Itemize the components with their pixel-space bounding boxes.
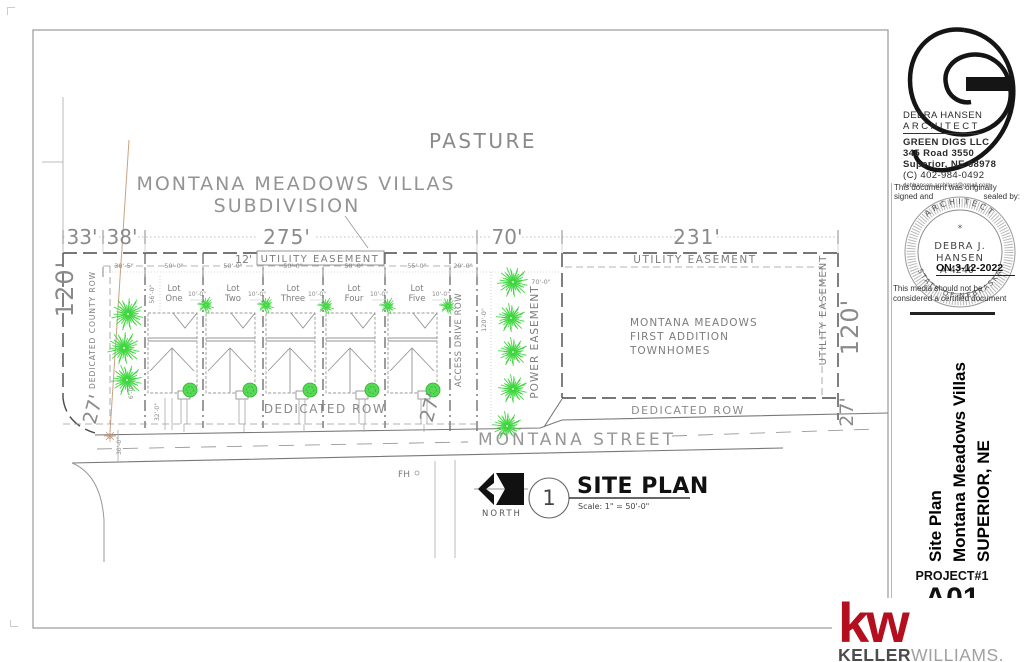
lot-four-label: Lot	[347, 284, 361, 294]
house-lot-two	[206, 313, 255, 424]
williams-wordmark: WILLIAMS.	[911, 645, 1004, 662]
dedicated-row-right-label: DEDICATED ROW	[631, 404, 745, 417]
project-title-vertical: Site Plan Montana Meadows Villas SUPERIO…	[924, 316, 996, 562]
view-scale: Scale: 1" = 50'-0"	[578, 502, 649, 511]
montana-street-label: MONTANA STREET	[478, 430, 676, 450]
architect-name: DEBRA HANSEN	[903, 110, 1021, 121]
keller-wordmark: KELLER	[838, 645, 911, 662]
architect-address1: 345 Road 3550	[903, 148, 1021, 159]
project-title-line1: Site Plan	[924, 316, 948, 562]
dim-56: 56'-0"	[148, 284, 156, 304]
power-easement-label: POWER EASEMENT	[529, 285, 541, 398]
north-arrow-icon	[474, 473, 528, 505]
architect-firm: GREEN DIGS LLC	[903, 137, 1021, 148]
dim-32: 32'-0"	[154, 403, 161, 421]
dim-30: 30'-0"	[116, 437, 123, 455]
tree-icon	[197, 297, 214, 314]
tree-icon	[498, 374, 527, 403]
dim-70: 70'	[492, 225, 523, 249]
certification-note-bottom: This media should not be considered a ce…	[893, 284, 1021, 303]
tree-icon	[111, 365, 142, 394]
lot-dim: 50'-0"	[283, 262, 303, 270]
certification-line4: considered a certified document	[893, 294, 1021, 304]
tree-icon	[257, 297, 274, 314]
lot-dim: 50'-0"	[344, 262, 364, 270]
dedicated-row-left-label: DEDICATED ROW	[264, 402, 386, 416]
subdivision-title-line2: SUBDIVISION	[214, 195, 361, 217]
setback-dim: 10'-0"	[188, 291, 206, 298]
access-drive-row-label: ACCESS DRIVE ROW	[454, 293, 464, 387]
project-title-line3: SUPERIOR, NE	[972, 316, 996, 562]
lot-two-name: Two	[224, 294, 241, 304]
tree-icon	[317, 298, 334, 315]
lot-dim: 38'-5"	[114, 262, 134, 270]
lot-three-name: Three	[280, 294, 305, 304]
dim-70-0: 70'-0"	[531, 278, 551, 286]
dim-6: 6'-0"	[128, 385, 135, 399]
lot-one-label: Lot	[167, 284, 181, 294]
setback-dim: 10'-0"	[370, 291, 388, 298]
subdivision-leader-line	[345, 216, 368, 248]
certification-line2-right: sealed by:	[984, 192, 1020, 201]
tree-icon	[498, 337, 527, 366]
dim-33: 33'	[67, 225, 98, 249]
tree-icon	[107, 332, 139, 364]
fire-hydrant-label: FH	[398, 470, 410, 480]
survey-line	[110, 140, 129, 432]
lot-four-name: Four	[345, 294, 364, 304]
architect-phone: (C) 402-984-0492	[903, 170, 1021, 181]
fire-hydrant-icon	[415, 471, 419, 475]
lot-five-name: Five	[409, 294, 426, 304]
setback-dim: 10'-0"	[308, 291, 326, 298]
lot-two-label: Lot	[226, 284, 240, 294]
project-number: PROJECT#1	[898, 569, 1006, 583]
certification-line2-left: signed and	[894, 192, 933, 201]
dim-27-right: 27'	[836, 397, 858, 426]
certification-line3: This media should not be	[893, 284, 1021, 294]
keller-williams-watermark: kw KELLERWILLIAMS.	[832, 598, 1024, 662]
lot-dim: 50'-0"	[223, 262, 243, 270]
curb-return	[72, 463, 104, 562]
architect-info-block: DEBRA HANSEN ARCHITECT GREEN DIGS LLC 34…	[903, 110, 1021, 192]
light-pole-icon	[104, 430, 116, 442]
lot-dim: 50'-0"	[164, 262, 184, 270]
setback-dim: 10'-0"	[432, 291, 450, 298]
seal-date: ON:3-12-2022	[936, 262, 1015, 276]
tree-icon	[379, 298, 396, 315]
utility-easement-right-label: UTILITY EASEMENT	[818, 255, 829, 366]
site-plan-sheet: PASTURE MONTANA MEADOWS VILLAS SUBDIVISI…	[0, 0, 1024, 662]
dim-275: 275'	[263, 225, 311, 249]
dim-120-0: 120'-0"	[480, 308, 488, 332]
view-title: SITE PLAN	[577, 474, 709, 499]
dim-27-left: 27'	[79, 392, 108, 426]
dim-38: 38'	[107, 225, 138, 249]
title-block-divider-line	[891, 183, 892, 628]
title-block-rule	[910, 312, 995, 315]
townhomes-line3: TOWNHOMES	[629, 345, 710, 357]
architect-title: ARCHITECT	[903, 121, 980, 134]
architect-address2: Superior, NE 68978	[903, 159, 1021, 170]
tree-icon	[496, 303, 525, 332]
seal-name1: DEBRA J.	[934, 241, 986, 252]
lot-five-label: Lot	[410, 284, 424, 294]
lot-dim: 55'-0"	[407, 262, 427, 270]
townhomes-line1: MONTANA MEADOWS	[630, 317, 758, 329]
view-number: 1	[542, 486, 555, 510]
townhomes-line2: FIRST ADDITION	[630, 331, 729, 343]
north-label: NORTH	[482, 509, 522, 519]
lot-dim: 20'-0"	[453, 262, 473, 270]
dim-120-left: 120'	[51, 261, 79, 317]
setback-dim: 10'-0"	[248, 291, 266, 298]
project-title-line2: Montana Meadows Villas	[948, 316, 972, 562]
tree-icon	[111, 298, 143, 330]
dedicated-county-row-label: DEDICATED COUNTY ROW	[88, 271, 97, 389]
site-plan-drawing: PASTURE MONTANA MEADOWS VILLAS SUBDIVISI…	[0, 0, 1024, 662]
subdivision-title-line1: MONTANA MEADOWS VILLAS	[136, 173, 455, 195]
certification-note-top: This document was originally signed and …	[894, 183, 1020, 201]
certification-line1: This document was originally	[894, 183, 1020, 192]
seal-star: *	[958, 224, 963, 234]
pasture-label: PASTURE	[429, 129, 537, 153]
utility-easement-top-label: UTILITY EASEMENT	[633, 254, 756, 266]
dim-120-right: 120'	[836, 299, 864, 355]
dim-231: 231'	[673, 225, 721, 249]
kw-logo: kw	[838, 598, 1024, 648]
lot-three-label: Lot	[286, 284, 300, 294]
lot-one-name: One	[165, 294, 182, 304]
